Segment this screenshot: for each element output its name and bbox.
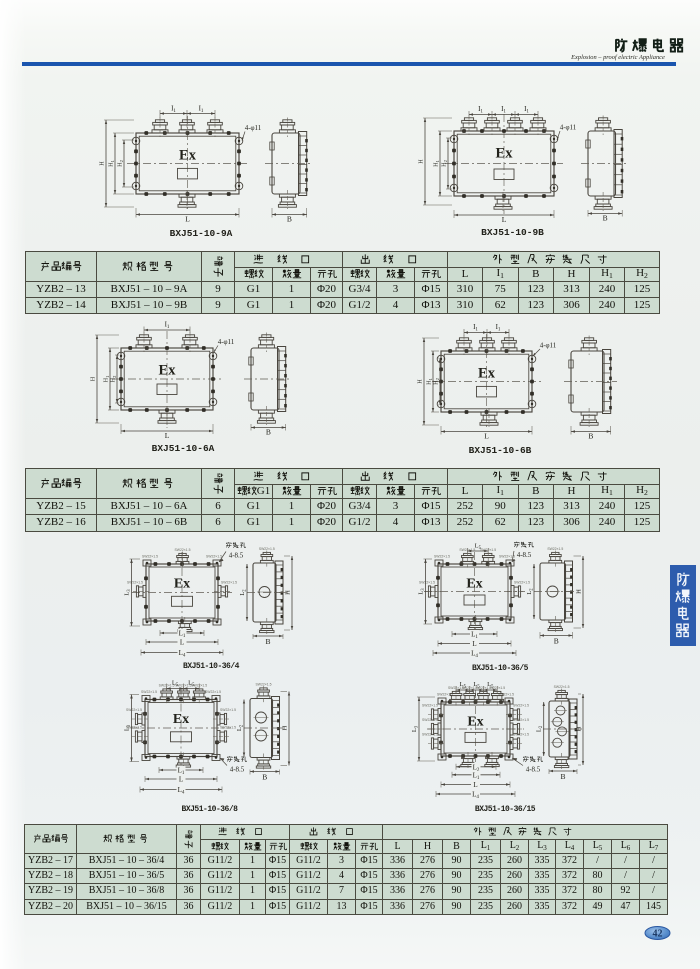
svg-text:H: H — [417, 379, 424, 384]
svg-text:L: L — [472, 640, 476, 648]
svg-text:B: B — [265, 637, 270, 646]
svg-text:SW22×1.5: SW22×1.5 — [221, 580, 237, 584]
svg-text:BXJ51-10-36/8: BXJ51-10-36/8 — [182, 805, 239, 814]
svg-text:H: H — [282, 725, 289, 730]
svg-text:I1: I1 — [473, 323, 478, 333]
svg-text:I1: I1 — [501, 105, 506, 115]
svg-text:L5: L5 — [475, 543, 482, 552]
svg-text:L3: L3 — [418, 588, 427, 595]
svg-text:SW22×1.5: SW22×1.5 — [205, 690, 221, 694]
svg-text:H2: H2 — [110, 376, 118, 383]
svg-text:4-φ11: 4-φ11 — [218, 338, 235, 346]
svg-text:SW22×1.5: SW22×1.5 — [220, 726, 236, 730]
svg-text:B: B — [287, 215, 292, 224]
svg-text:B: B — [554, 637, 559, 646]
svg-text:SW22×1.5: SW22×1.5 — [434, 555, 450, 559]
svg-text:I1: I1 — [165, 321, 170, 331]
svg-text:L2: L2 — [239, 589, 248, 596]
svg-text:Ex: Ex — [466, 577, 482, 592]
svg-text:BXJ51-10-36/4: BXJ51-10-36/4 — [183, 662, 240, 671]
svg-text:BXJ51-10-36/15: BXJ51-10-36/15 — [475, 805, 536, 814]
svg-text:Ex: Ex — [478, 366, 496, 382]
svg-text:H: H — [90, 376, 97, 381]
svg-text:SW22×1.5: SW22×1.5 — [259, 547, 275, 551]
svg-text:4-φ11: 4-φ11 — [245, 124, 262, 132]
svg-text:SW22×1.5: SW22×1.5 — [175, 548, 191, 552]
svg-text:L: L — [473, 781, 477, 789]
svg-text:SW22×1.5: SW22×1.5 — [422, 733, 438, 737]
svg-text:4-8.5: 4-8.5 — [517, 551, 532, 559]
svg-text:H1: H1 — [433, 160, 441, 167]
svg-text:SW22×1.5: SW22×1.5 — [142, 555, 158, 559]
svg-text:SW22×1.5: SW22×1.5 — [422, 718, 438, 722]
svg-text:SW22×1.5: SW22×1.5 — [513, 733, 529, 737]
svg-text:L: L — [180, 639, 184, 647]
svg-text:L: L — [484, 432, 489, 441]
svg-text:B: B — [262, 773, 267, 782]
svg-text:BXJ51-10-6A: BXJ51-10-6A — [152, 443, 215, 454]
svg-text:L2: L2 — [526, 588, 535, 595]
svg-text:SW22×1.5: SW22×1.5 — [126, 708, 142, 712]
svg-text:L: L — [185, 215, 190, 224]
svg-text:Ex: Ex — [467, 715, 483, 730]
svg-text:SW22×1.5: SW22×1.5 — [419, 581, 435, 585]
svg-text:SW22×1.5: SW22×1.5 — [514, 581, 530, 585]
svg-text:H2: H2 — [117, 160, 125, 167]
svg-text:Ex: Ex — [174, 577, 190, 592]
svg-text:L3: L3 — [124, 724, 133, 731]
svg-text:SW22×1.5: SW22×1.5 — [422, 704, 438, 708]
svg-text:BXJ51-10-9B: BXJ51-10-9B — [481, 227, 544, 238]
svg-text:42: 42 — [653, 929, 663, 940]
svg-text:H2: H2 — [433, 378, 441, 385]
svg-text:4-φ11: 4-φ11 — [560, 124, 577, 132]
svg-text:I1: I1 — [524, 105, 529, 115]
svg-text:L: L — [502, 215, 507, 224]
svg-text:SW22×1.5: SW22×1.5 — [547, 547, 563, 551]
svg-text:SW22×1.5: SW22×1.5 — [127, 580, 143, 584]
svg-text:4-φ11: 4-φ11 — [540, 342, 557, 350]
svg-text:BXJ51-10-6B: BXJ51-10-6B — [469, 445, 532, 456]
svg-text:SW22×1.5: SW22×1.5 — [554, 685, 570, 689]
svg-text:L3: L3 — [124, 589, 133, 596]
svg-text:Ex: Ex — [173, 712, 189, 727]
svg-text:Ex: Ex — [179, 148, 197, 164]
svg-text:L2: L2 — [236, 724, 245, 731]
svg-text:Ex: Ex — [496, 146, 514, 162]
svg-text:H2: H2 — [441, 160, 449, 167]
svg-text:I1: I1 — [478, 105, 483, 115]
svg-text:H: H — [285, 590, 292, 595]
svg-text:SW22×1.5: SW22×1.5 — [256, 683, 272, 687]
svg-text:4-8.5: 4-8.5 — [526, 766, 541, 774]
svg-text:H: H — [418, 159, 425, 164]
svg-text:L: L — [165, 431, 170, 440]
svg-text:I1: I1 — [496, 323, 501, 333]
svg-text:I1: I1 — [199, 105, 204, 115]
svg-text:SW22×1.5: SW22×1.5 — [513, 718, 529, 722]
svg-text:SW22×1.5: SW22×1.5 — [141, 690, 157, 694]
svg-text:L3: L3 — [411, 725, 420, 732]
svg-text:4-8.5: 4-8.5 — [230, 766, 245, 774]
svg-text:H1: H1 — [108, 160, 116, 167]
svg-text:SW22×1.5: SW22×1.5 — [206, 555, 222, 559]
svg-text:L: L — [179, 776, 183, 784]
svg-text:H: H — [576, 726, 583, 731]
svg-text:H: H — [576, 589, 583, 594]
svg-text:B: B — [588, 432, 593, 441]
svg-text:B: B — [266, 428, 271, 437]
svg-text:BXJ51-10-9A: BXJ51-10-9A — [170, 228, 233, 239]
svg-text:H: H — [99, 161, 106, 166]
svg-text:Ex: Ex — [159, 363, 177, 379]
svg-text:L2: L2 — [536, 725, 545, 732]
svg-text:SW22×1.5: SW22×1.5 — [513, 704, 529, 708]
svg-text:I1: I1 — [171, 105, 176, 115]
svg-text:SW22×1.5: SW22×1.5 — [220, 708, 236, 712]
svg-text:B: B — [603, 214, 608, 223]
svg-text:B: B — [560, 772, 565, 781]
svg-text:BXJ51-10-36/5: BXJ51-10-36/5 — [472, 664, 529, 673]
svg-text:4-8.5: 4-8.5 — [229, 552, 244, 560]
